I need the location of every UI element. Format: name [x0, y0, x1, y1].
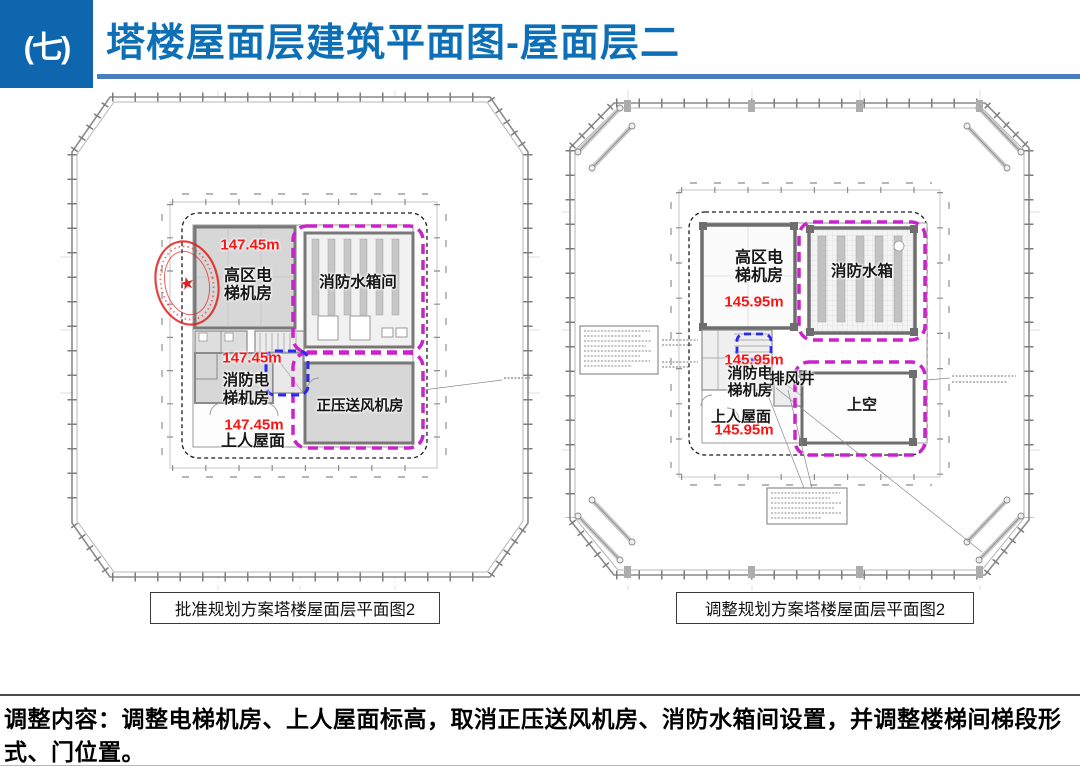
room-label-fire-water-tank: 消防水箱 [831, 263, 893, 281]
elevation-label: 147.45m [224, 417, 283, 434]
fixture [199, 333, 207, 341]
room-label-fire-water-tank: 消防水箱间 [319, 274, 397, 292]
slide-page: (七) 塔楼屋面层建筑平面图-屋面层二 [0, 0, 1080, 766]
room-label-fire-elevator: 消防电梯机房 [725, 365, 775, 400]
tank-detail-circle [894, 241, 904, 251]
elevation-label: 145.95m [714, 422, 773, 439]
approved-plan-drawing: ★ 147.45m 高区电梯机房 消防水箱间 147.45m 消防电梯机房 14… [60, 90, 540, 590]
approved-plan-caption: 批准规划方案塔楼屋面层平面图2 [150, 592, 440, 624]
room-label-air-supply: 正压送风机房 [317, 399, 404, 416]
room-label-open-to-below: 上空 [847, 396, 877, 413]
room-label-fire-elevator: 消防电梯机房 [220, 372, 271, 408]
adjustment-note-text: 调整内容：调整电梯机房、上人屋面标高，取消正压送风机房、消防水箱间设置，并调整楼… [0, 696, 1080, 766]
fixture [225, 333, 233, 341]
title-underline [97, 74, 1080, 79]
elevation-label: 147.45m [220, 237, 279, 254]
adjusted-plan-drawing: 高区电梯机房 145.95m 消防水箱 145.95m 消防电梯机房 排风井 上… [562, 90, 1040, 590]
elevation-label: 145.95m [724, 294, 783, 311]
adjusted-plan-caption: 调整规划方案塔楼屋面层平面图2 [676, 592, 974, 624]
approved-plan-svg: ★ [60, 90, 540, 590]
section-number: (七) [24, 22, 70, 67]
room-label-high-zone-elevator: 高区电梯机房 [222, 268, 275, 305]
page-title: 塔楼屋面层建筑平面图-屋面层二 [106, 12, 680, 68]
adjustment-note-section: 调整内容：调整电梯机房、上人屋面标高，取消正压送风机房、消防水箱间设置，并调整楼… [0, 694, 1080, 766]
room-label-exhaust-shaft: 排风井 [769, 370, 814, 387]
room-label-high-zone-elevator: 高区电梯机房 [733, 250, 786, 287]
elevation-label: 147.45m [222, 350, 281, 367]
room-label-accessible-roof: 上人屋面 [221, 433, 285, 451]
adjusted-plan-svg [562, 90, 1040, 590]
section-number-badge: (七) [0, 0, 93, 88]
notes-block-bottom [767, 488, 847, 524]
